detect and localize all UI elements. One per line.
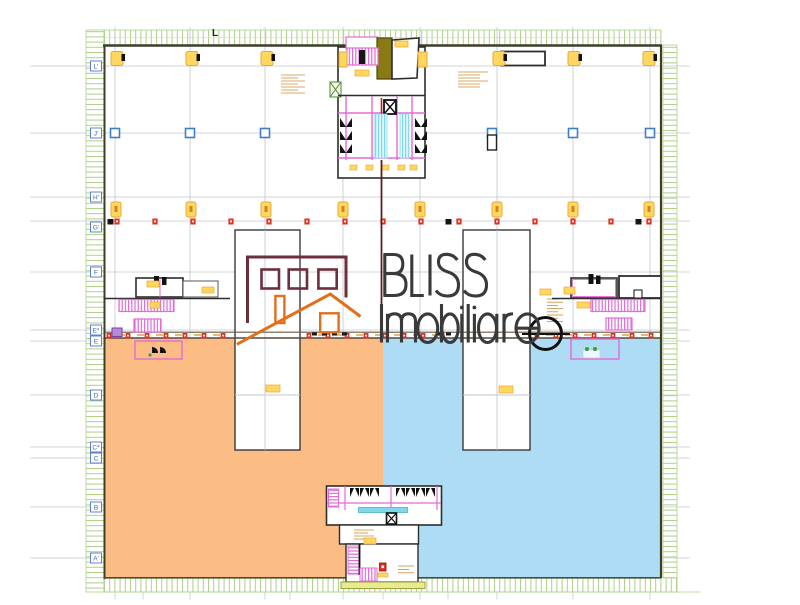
svg-text:L': L' [94,64,99,71]
svg-text:L: L [212,28,218,39]
svg-text:J': J' [94,131,99,138]
svg-text:E: E [94,339,99,346]
svg-text:B: B [94,505,98,512]
svg-text:F: F [94,270,98,277]
svg-text:G': G' [93,225,99,232]
svg-text:D: D [94,393,99,400]
svg-text:H': H' [93,195,99,202]
svg-text:A': A' [93,556,99,563]
svg-text:E*: E* [93,328,100,335]
svg-text:C: C [94,456,99,463]
svg-text:C*: C* [92,445,100,452]
